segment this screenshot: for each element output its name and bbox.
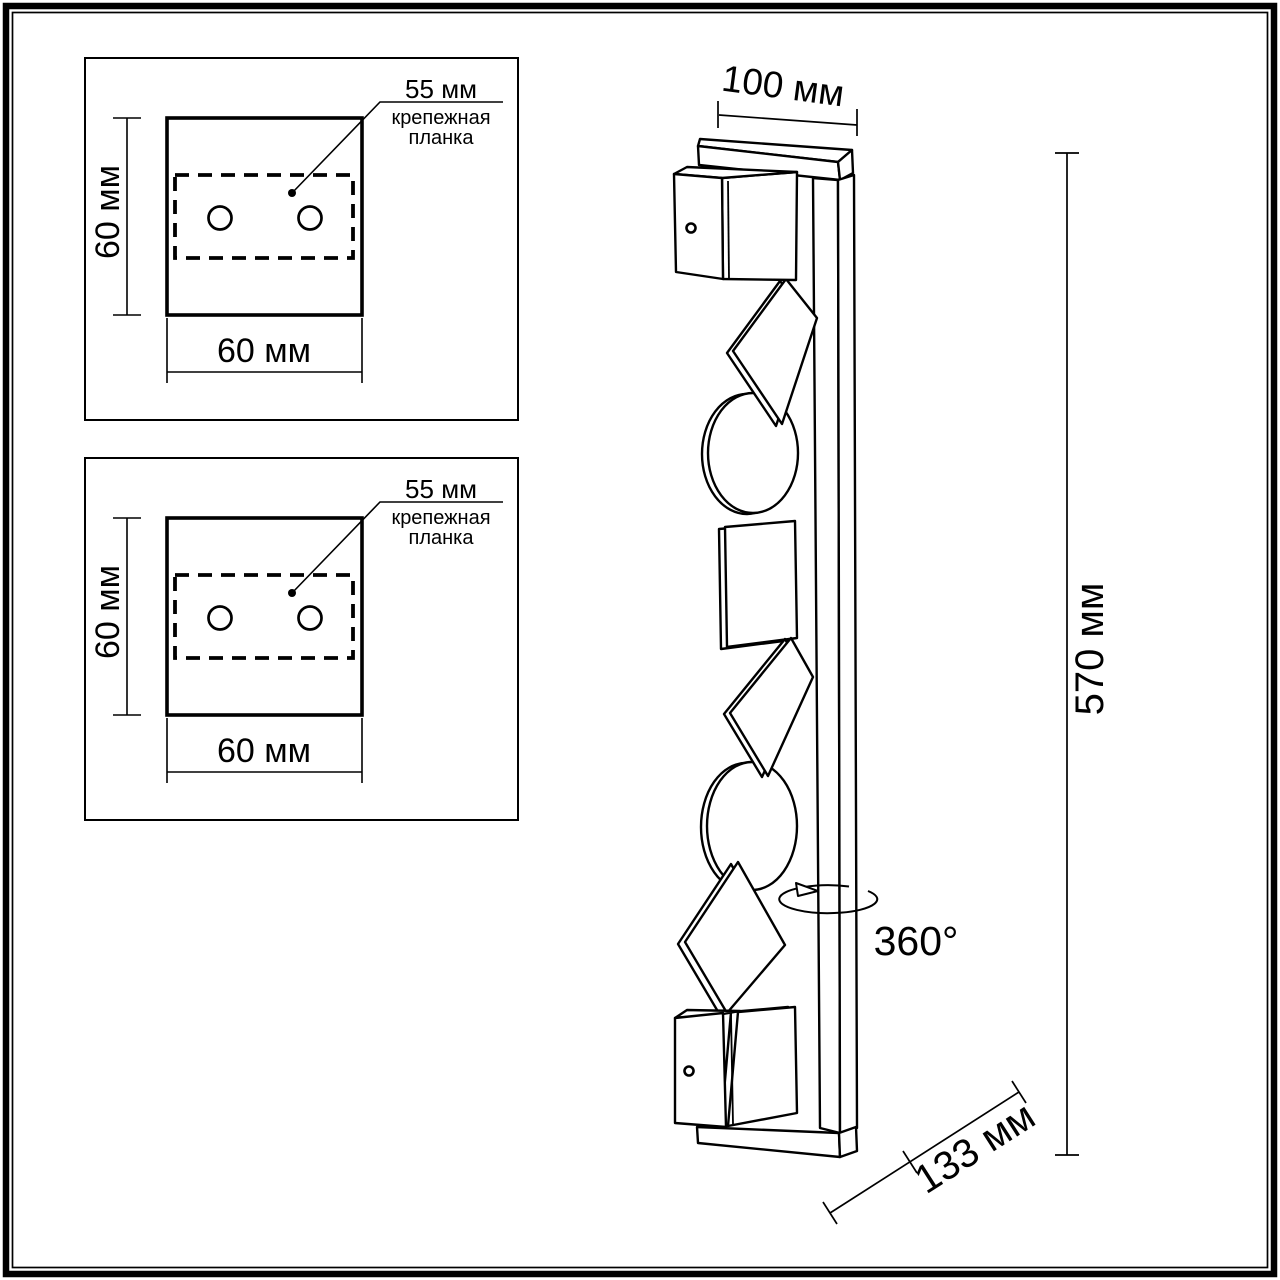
leader-dot (288, 589, 296, 597)
square-shade-1 (725, 521, 797, 647)
depth-tick-left (823, 1202, 837, 1224)
plate-name-line2: планка (409, 527, 475, 549)
shade-diamonds (678, 279, 817, 1015)
plate-name-line1: крепежная (391, 507, 490, 529)
diagram-canvas: 55 мм крепежная планка 60 мм 60 мм 55 мм… (0, 0, 1280, 1280)
height-label: 60 мм (89, 565, 127, 659)
head-cube-top-side-face (722, 172, 797, 280)
head-cube-top-screw-hole (687, 224, 696, 233)
top-width-dimension-line (719, 115, 857, 125)
head-cube-bottom-front-face (675, 1013, 726, 1127)
width-label: 60 мм (217, 332, 311, 370)
height-label: 570 мм (1068, 583, 1112, 716)
head-cube-top (674, 167, 797, 280)
disc-shade-2 (707, 762, 797, 890)
height-label: 60 мм (89, 165, 127, 259)
plate-width-label: 55 мм (405, 474, 477, 504)
width-label: 60 мм (217, 732, 311, 770)
dimension-diagram: 55 мм крепежная планка 60 мм 60 мм 55 мм… (0, 0, 1280, 1280)
leader-dot (288, 189, 296, 197)
square-shade-2 (728, 1007, 797, 1126)
head-cube-top-front-face (674, 174, 723, 279)
plate-width-label: 55 мм (405, 74, 477, 104)
mount-panel-bottom: 55 мм крепежная планка 60 мм 60 мм (85, 458, 518, 820)
head-cube-bottom-screw-hole (685, 1067, 694, 1076)
plate-name-line1: крепежная (391, 107, 490, 129)
rotation-angle-label: 360° (874, 918, 959, 964)
head-cube-top-edge-line (728, 181, 729, 279)
top-width-label: 100 мм (719, 58, 846, 115)
mount-panel-top: 55 мм крепежная планка 60 мм 60 мм (85, 58, 518, 420)
plate-name-line2: планка (409, 127, 475, 149)
bar-side-face (838, 175, 857, 1133)
depth-label: 133 мм (907, 1094, 1043, 1203)
base-plate-end-face (839, 1127, 857, 1157)
lamp-side-view (674, 139, 877, 1157)
base-plate-front-face (697, 1127, 840, 1157)
